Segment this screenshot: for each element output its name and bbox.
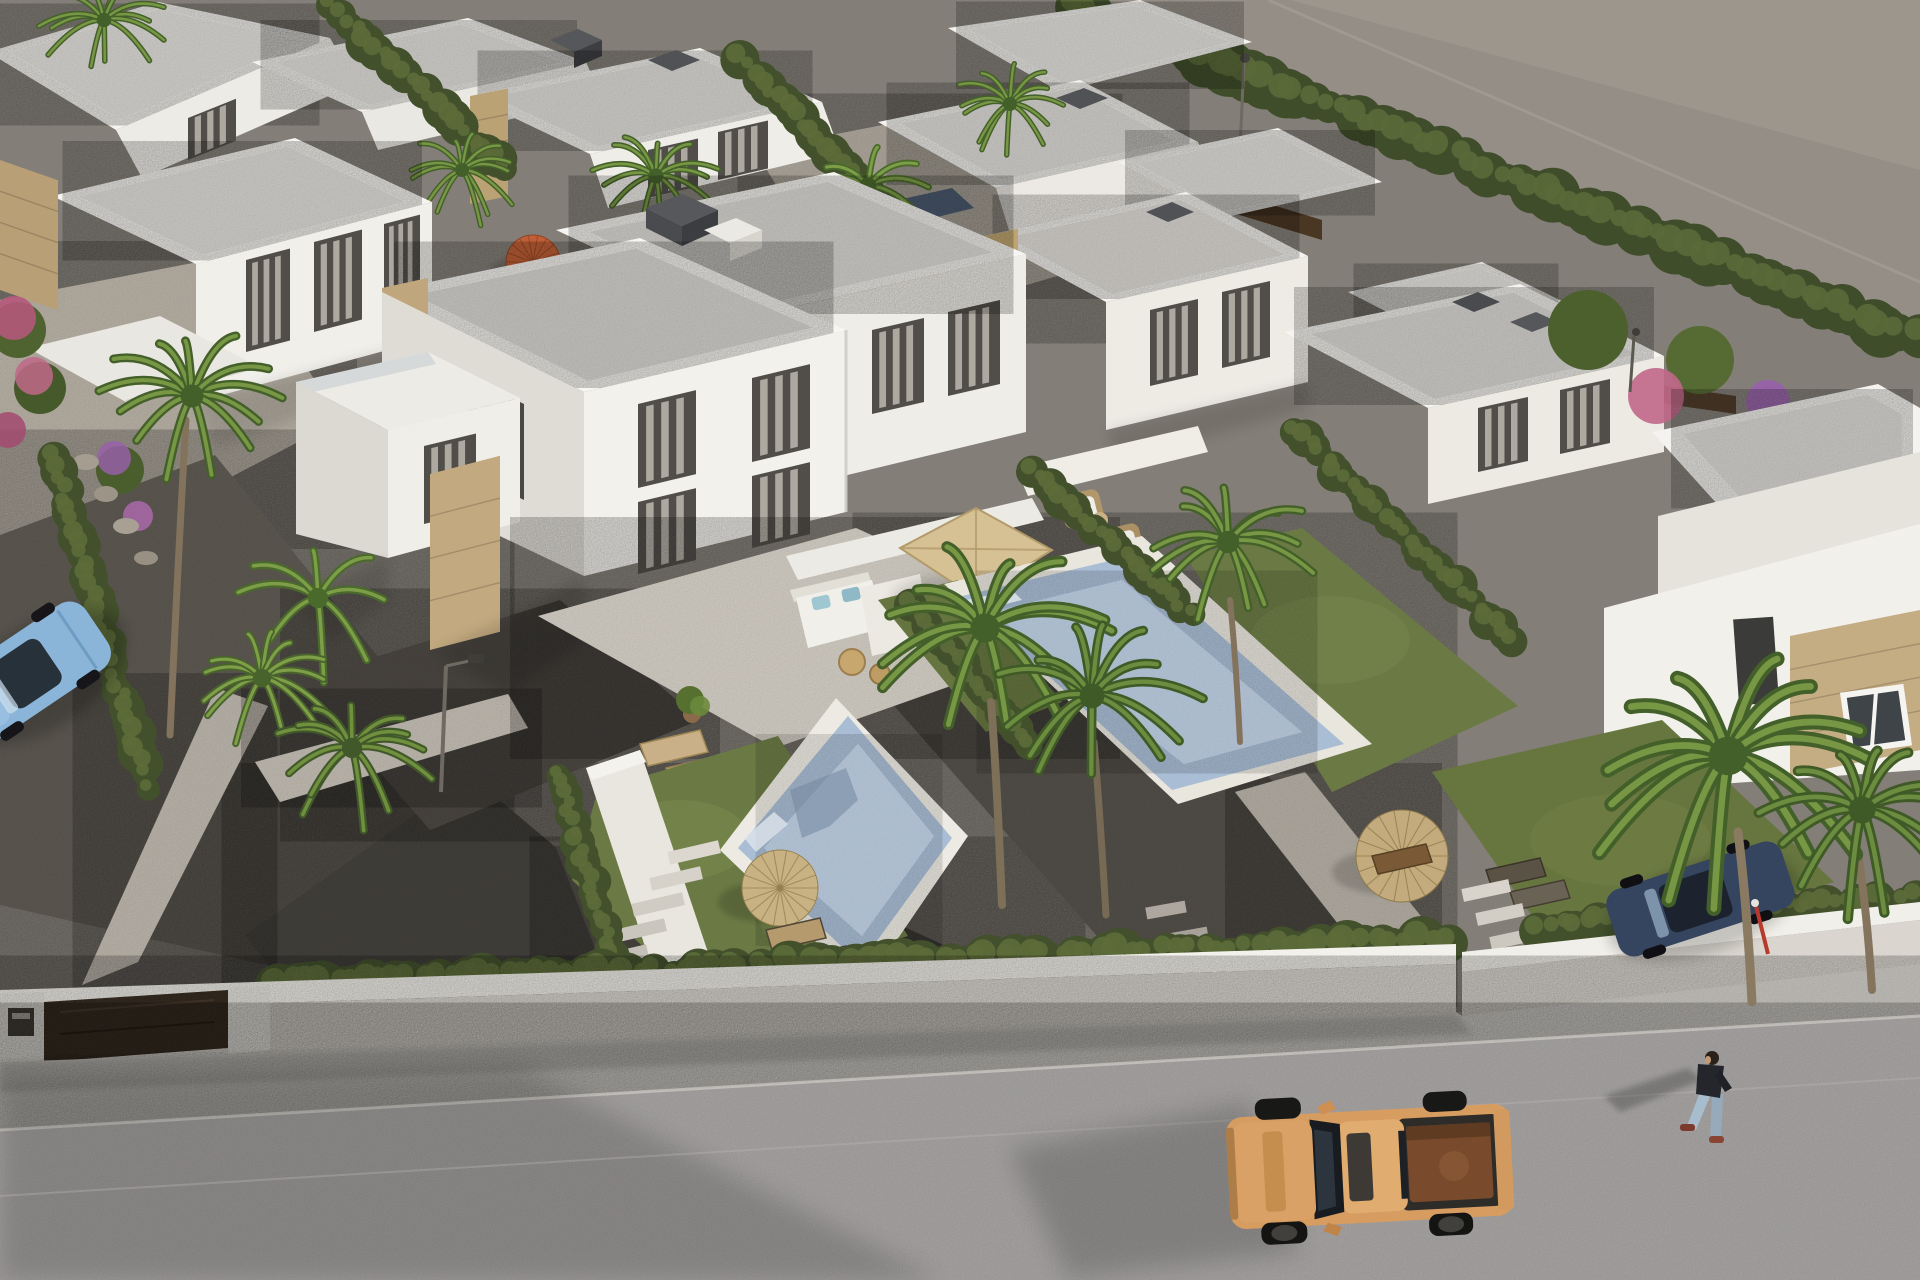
- hedge-row-bush-light: [1309, 441, 1322, 454]
- hedge-perimeter-bush-light: [1179, 937, 1194, 952]
- villa-window-curtain: [751, 125, 758, 170]
- curtain-window: [638, 390, 696, 488]
- hedge-top-boundary-bush-light: [1587, 196, 1614, 223]
- hedge-top-boundary-bush-light: [1278, 76, 1301, 99]
- hedge-top-boundary-bush-light: [1424, 130, 1449, 155]
- hedge-row-bush-light: [363, 37, 381, 55]
- gate-sign-label: [12, 1013, 30, 1019]
- curtain-window-curtain: [646, 404, 654, 481]
- hedge-top-boundary-bush-light: [1471, 156, 1494, 179]
- palm-tree-crown: [1848, 796, 1875, 823]
- curtain-window-curtain: [1485, 408, 1492, 467]
- curtain-window-curtain: [1241, 290, 1247, 360]
- hedge-row-bush-light: [1501, 629, 1517, 645]
- curtain-window-curtain: [760, 476, 768, 543]
- villa-window-curtain: [220, 105, 226, 145]
- curtain-window: [638, 488, 696, 574]
- hedge-perimeter-bush-light: [1562, 914, 1580, 932]
- hedge-perimeter-bush-light: [1030, 941, 1048, 959]
- gate-pillar: [228, 986, 270, 1054]
- street-lamp-head: [468, 654, 484, 663]
- curtain-window-curtain: [775, 375, 783, 452]
- curtain-window: [752, 364, 810, 462]
- stone-pillar-face: [430, 456, 500, 650]
- person-leg: [1710, 1094, 1723, 1138]
- hedge-row-bush-light: [1106, 536, 1122, 552]
- flowering-tree: [1628, 368, 1684, 424]
- rock-border: [134, 551, 158, 565]
- hedge-row-bush-light: [787, 101, 806, 120]
- hedge-perimeter-bush-light: [1351, 928, 1370, 947]
- coffee-table: [839, 649, 865, 675]
- person-face: [1705, 1056, 1711, 1064]
- curtain-window: [752, 462, 810, 548]
- curtain-window-curtain: [1157, 311, 1163, 381]
- rock-border: [94, 486, 118, 502]
- curtain-window-curtain: [1229, 293, 1235, 363]
- curtain-window-curtain: [760, 378, 768, 455]
- fan-palm-crown: [253, 669, 271, 687]
- curtain-window-curtain: [955, 313, 962, 390]
- hedge-top-boundary-bush-light: [1706, 241, 1730, 265]
- curtain-window-curtain: [252, 262, 258, 346]
- stone-wall-face: [0, 160, 58, 310]
- palm-tree-crown: [970, 613, 999, 642]
- hedge-row-bush-light: [339, 15, 353, 29]
- hedge-left-boundary-bush-light: [136, 763, 149, 776]
- hedge-left-boundary-bush-light: [57, 477, 73, 493]
- curtain-window-curtain: [646, 502, 654, 569]
- curtain-window-curtain: [893, 328, 900, 405]
- hedge-perimeter-bush-light: [1329, 925, 1355, 951]
- curtain-window: [314, 230, 362, 332]
- curtain-window-curtain: [661, 401, 669, 478]
- hedge-row-bush-light: [1444, 568, 1464, 588]
- hedge-row-bush-light: [1397, 524, 1409, 536]
- street-lamp-head: [1632, 328, 1640, 336]
- curtain-window: [872, 318, 924, 414]
- curtain-window: [1222, 281, 1270, 368]
- hedge-perimeter-bush-light: [1904, 883, 1920, 900]
- hedge-perimeter-bush-light: [1235, 936, 1250, 951]
- stone-wall: [0, 160, 58, 310]
- hedge-top-boundary-bush-light: [1884, 317, 1903, 336]
- curtain-window-curtain: [1182, 305, 1188, 375]
- fan-palm-crown: [342, 738, 362, 758]
- truck-wheel: [1254, 1097, 1301, 1120]
- palm-tree-crown: [1003, 97, 1017, 111]
- villa-window-curtain: [207, 110, 213, 150]
- hedge-row-bush-light: [458, 124, 470, 136]
- hedge-left-boundary-bush-light: [140, 779, 152, 791]
- palm-tree-crown: [455, 163, 469, 177]
- hedge-row-bush-light: [1367, 498, 1382, 513]
- hedge-perimeter-bush-light: [1403, 921, 1429, 947]
- flag-pole-top: [1751, 899, 1759, 907]
- palm-tree-crown: [1080, 684, 1105, 709]
- gate-sign: [8, 1008, 34, 1036]
- bougainvillea-bloom: [15, 357, 53, 395]
- hedge-top-boundary-bush-light: [1317, 94, 1333, 110]
- straw-umbrella: [742, 850, 818, 926]
- hedge-row-bush-light: [330, 2, 345, 17]
- hedge-left-boundary-bush-light: [71, 543, 85, 557]
- curtain-window-curtain: [982, 307, 989, 384]
- hedge-perimeter-bush-light: [1436, 927, 1455, 946]
- curtain-window: [1478, 397, 1528, 472]
- hedge-row-bush-light: [564, 828, 582, 846]
- hedge-row-bush-light: [565, 810, 580, 825]
- curtain-window-curtain: [264, 259, 270, 343]
- scene-root: [0, 0, 1920, 1280]
- curtain-window-curtain: [676, 397, 684, 474]
- curtain-window-curtain: [676, 495, 684, 562]
- banana-plant-crown: [308, 588, 328, 608]
- curtain-window-curtain: [661, 498, 669, 565]
- hedge-row-bush-light: [392, 61, 410, 79]
- hedge-row-bush-light: [1082, 517, 1098, 533]
- villa-window-curtain: [725, 131, 732, 176]
- hedge-row-bush-light: [1021, 458, 1037, 474]
- curtain-window-curtain: [1169, 308, 1175, 378]
- person-shoe: [1709, 1136, 1724, 1143]
- curtain-window: [1560, 379, 1610, 454]
- curtain-window-curtain: [346, 237, 352, 320]
- truck-hood-scoop: [1262, 1131, 1286, 1212]
- curtain-window-curtain: [1580, 387, 1587, 446]
- curtain-window-curtain: [906, 325, 913, 402]
- render-viewport: [0, 0, 1920, 1280]
- truck-wheel: [1422, 1090, 1467, 1112]
- hedge-perimeter-bush-light: [1524, 916, 1543, 935]
- hedge-perimeter-bush-light: [1544, 917, 1559, 932]
- curtain-window-curtain: [1567, 390, 1574, 449]
- aerial-villa-render: [0, 0, 1920, 1280]
- curtain-window-curtain: [775, 472, 783, 539]
- curtain-window-curtain: [1511, 403, 1518, 462]
- palm-tree-crown: [648, 168, 663, 183]
- hedge-row-bush-light: [1170, 599, 1183, 612]
- palm-tree-crown: [1709, 737, 1747, 775]
- bougainvillea-bloom: [97, 441, 131, 475]
- villa-window-curtain: [738, 128, 745, 173]
- hedge-perimeter-bush-light: [1102, 932, 1127, 957]
- street-lamp-head: [1240, 53, 1250, 63]
- truck-sunroof: [1346, 1132, 1374, 1201]
- hedge-row-bush-light: [1019, 734, 1033, 748]
- rock-border: [113, 518, 139, 534]
- palm-tree-crown: [97, 13, 112, 28]
- potted-plant: [690, 696, 710, 716]
- hedge-perimeter-bush-light: [1811, 888, 1831, 908]
- hedge-row-bush-light: [587, 896, 602, 911]
- curtain-window-curtain: [969, 310, 976, 387]
- straw-umbrella-hub: [777, 885, 784, 892]
- curtain-window: [948, 300, 1000, 396]
- curtain-window: [246, 249, 290, 352]
- curtain-window: [1150, 299, 1198, 386]
- curtain-window-curtain: [790, 371, 798, 448]
- stone-pillar: [430, 456, 500, 650]
- curtain-window-curtain: [1254, 287, 1260, 357]
- hedge-row-bush-light: [1337, 469, 1350, 482]
- curtain-window-curtain: [1593, 385, 1600, 444]
- tree: [1548, 290, 1628, 370]
- curtain-window-curtain: [1498, 405, 1505, 464]
- palm-tree-crown: [181, 385, 204, 408]
- person-shoe: [1680, 1124, 1695, 1131]
- hedge-top-boundary-bush-light: [1839, 304, 1856, 321]
- curtain-window-curtain: [333, 240, 339, 323]
- curtain-window-curtain: [275, 256, 281, 340]
- hedge-row-bush-light: [1466, 591, 1478, 603]
- curtain-window-curtain: [321, 243, 327, 326]
- hedge-top-boundary-bush-light: [1300, 85, 1319, 104]
- palm-tree-crown: [1217, 531, 1239, 553]
- villa-window-curtain: [195, 115, 201, 155]
- curtain-window-curtain: [790, 469, 798, 536]
- curtain-window-curtain: [879, 331, 886, 408]
